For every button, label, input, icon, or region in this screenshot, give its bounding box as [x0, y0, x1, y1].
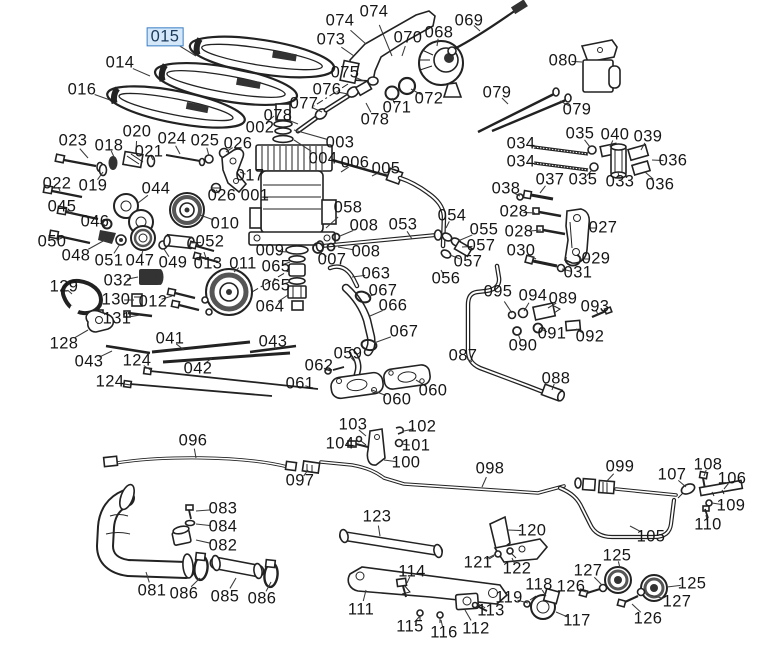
- part-label-068[interactable]: 068: [425, 24, 454, 41]
- part-label-004[interactable]: 004: [309, 150, 338, 167]
- part-label-008[interactable]: 008: [352, 243, 381, 260]
- labels-layer: 0150140160740740730700680690750760770780…: [0, 0, 779, 659]
- part-label-049[interactable]: 049: [159, 254, 188, 271]
- part-label-060[interactable]: 060: [419, 382, 448, 399]
- part-label-086[interactable]: 086: [248, 590, 277, 607]
- part-label-013[interactable]: 013: [194, 255, 223, 272]
- part-label-101[interactable]: 101: [402, 437, 431, 454]
- part-label-043[interactable]: 043: [75, 353, 104, 370]
- part-label-031[interactable]: 031: [564, 264, 593, 281]
- part-label-010[interactable]: 010: [211, 215, 240, 232]
- part-label-077[interactable]: 077: [290, 95, 319, 112]
- part-label-109[interactable]: 109: [717, 497, 746, 514]
- part-label-129[interactable]: 129: [50, 278, 79, 295]
- part-label-116[interactable]: 116: [430, 624, 458, 641]
- part-label-088[interactable]: 088: [542, 370, 571, 387]
- part-label-022[interactable]: 022: [43, 175, 72, 192]
- part-label-048[interactable]: 048: [62, 247, 91, 264]
- part-label-102[interactable]: 102: [408, 418, 437, 435]
- part-label-089[interactable]: 089: [549, 290, 578, 307]
- part-label-035[interactable]: 035: [566, 125, 595, 142]
- part-label-030[interactable]: 030: [507, 242, 536, 259]
- part-label-079[interactable]: 079: [563, 101, 592, 118]
- part-label-083[interactable]: 083: [209, 500, 238, 517]
- part-label-110[interactable]: 110: [694, 516, 722, 533]
- part-label-060[interactable]: 060: [383, 391, 412, 408]
- part-label-032[interactable]: 032: [104, 272, 133, 289]
- part-label-011[interactable]: 011: [229, 255, 257, 272]
- part-label-064[interactable]: 064: [256, 298, 285, 315]
- part-label-033[interactable]: 033: [606, 173, 635, 190]
- part-label-119[interactable]: 119: [495, 589, 523, 606]
- part-label-121[interactable]: 121: [464, 554, 493, 571]
- part-label-023[interactable]: 023: [59, 132, 88, 149]
- part-label-097[interactable]: 097: [286, 472, 315, 489]
- diagram-canvas: 0150140160740740730700680690750760770780…: [0, 0, 779, 659]
- part-label-071[interactable]: 071: [383, 99, 412, 116]
- part-label-099[interactable]: 099: [606, 458, 635, 475]
- part-label-045[interactable]: 045: [48, 198, 77, 215]
- part-label-120[interactable]: 120: [518, 522, 547, 539]
- part-label-066[interactable]: 066: [379, 297, 408, 314]
- part-label-069[interactable]: 069: [455, 12, 484, 29]
- part-label-065[interactable]: 065: [262, 277, 291, 294]
- part-label-103[interactable]: 103: [339, 416, 368, 433]
- part-label-084[interactable]: 084: [209, 518, 238, 535]
- part-label-006[interactable]: 006: [341, 154, 370, 171]
- part-label-058[interactable]: 058: [334, 199, 363, 216]
- part-label-017[interactable]: 017: [236, 167, 265, 184]
- part-label-067[interactable]: 067: [390, 323, 419, 340]
- part-label-062[interactable]: 062: [305, 357, 334, 374]
- part-label-094[interactable]: 094: [519, 287, 548, 304]
- part-label-114[interactable]: 114: [398, 563, 426, 580]
- part-label-008[interactable]: 008: [350, 217, 379, 234]
- part-label-026[interactable]: 026: [224, 135, 253, 152]
- part-label-115[interactable]: 115: [396, 618, 424, 635]
- part-label-091[interactable]: 091: [538, 325, 567, 342]
- part-label-065[interactable]: 065: [262, 258, 291, 275]
- part-label-047[interactable]: 047: [126, 252, 155, 269]
- part-label-090[interactable]: 090: [509, 337, 538, 354]
- part-label-111[interactable]: 111: [348, 601, 374, 618]
- part-label-123[interactable]: 123: [363, 508, 392, 525]
- part-label-028[interactable]: 028: [505, 223, 534, 240]
- part-label-034[interactable]: 034: [507, 153, 536, 170]
- part-label-061[interactable]: 061: [286, 375, 315, 392]
- part-label-059[interactable]: 059: [334, 345, 363, 362]
- part-label-072[interactable]: 072: [415, 90, 444, 107]
- part-label-057[interactable]: 057: [454, 253, 483, 270]
- part-label-046[interactable]: 046: [81, 213, 110, 230]
- part-label-124[interactable]: 124: [96, 373, 125, 390]
- part-label-005[interactable]: 005: [372, 160, 401, 177]
- part-label-070[interactable]: 070: [394, 29, 423, 46]
- part-label-034[interactable]: 034: [507, 135, 536, 152]
- part-label-124[interactable]: 124: [123, 352, 152, 369]
- part-label-126[interactable]: 126: [557, 578, 586, 595]
- part-label-131[interactable]: 131: [103, 310, 132, 327]
- part-label-054[interactable]: 054: [438, 207, 467, 224]
- part-label-052[interactable]: 052: [196, 233, 225, 250]
- part-label-044[interactable]: 044: [142, 180, 171, 197]
- part-label-040[interactable]: 040: [601, 126, 630, 143]
- part-label-051[interactable]: 051: [95, 252, 124, 269]
- part-label-127[interactable]: 127: [663, 593, 692, 610]
- part-label-106[interactable]: 106: [718, 470, 747, 487]
- part-label-026[interactable]: 026: [208, 187, 237, 204]
- part-label-021[interactable]: 021: [135, 143, 164, 160]
- part-label-041[interactable]: 041: [156, 330, 185, 347]
- part-label-096[interactable]: 096: [179, 432, 208, 449]
- part-label-092[interactable]: 092: [576, 328, 605, 345]
- part-label-107[interactable]: 107: [658, 466, 687, 483]
- part-label-093[interactable]: 093: [581, 298, 610, 315]
- part-label-130[interactable]: 130: [102, 291, 131, 308]
- part-label-036[interactable]: 036: [646, 176, 675, 193]
- part-label-073[interactable]: 073: [317, 31, 346, 48]
- part-label-035[interactable]: 035: [569, 171, 598, 188]
- part-label-042[interactable]: 042: [184, 360, 213, 377]
- part-label-038[interactable]: 038: [492, 180, 521, 197]
- part-label-014[interactable]: 014: [106, 54, 135, 71]
- part-label-015[interactable]: 015: [147, 27, 184, 46]
- part-label-001[interactable]: 001: [241, 187, 270, 204]
- part-label-087[interactable]: 087: [449, 347, 478, 364]
- part-label-100[interactable]: 100: [392, 454, 421, 471]
- part-label-036[interactable]: 036: [659, 152, 688, 169]
- part-label-082[interactable]: 082: [209, 537, 238, 554]
- part-label-128[interactable]: 128: [50, 335, 79, 352]
- part-label-104[interactable]: 104: [326, 435, 355, 452]
- part-label-020[interactable]: 020: [123, 123, 152, 140]
- part-label-012[interactable]: 012: [139, 293, 168, 310]
- part-label-016[interactable]: 016: [68, 81, 97, 98]
- part-label-074[interactable]: 074: [326, 12, 355, 29]
- part-label-053[interactable]: 053: [389, 216, 418, 233]
- part-label-126[interactable]: 126: [634, 610, 663, 627]
- part-label-002[interactable]: 002: [246, 119, 275, 136]
- part-label-056[interactable]: 056: [432, 270, 461, 287]
- part-label-074[interactable]: 074: [360, 3, 389, 20]
- part-label-039[interactable]: 039: [634, 128, 663, 145]
- part-label-028[interactable]: 028: [500, 203, 529, 220]
- part-label-080[interactable]: 080: [549, 52, 578, 69]
- part-label-095[interactable]: 095: [484, 283, 513, 300]
- part-label-018[interactable]: 018: [95, 137, 124, 154]
- part-label-117[interactable]: 117: [563, 612, 591, 629]
- part-label-085[interactable]: 085: [211, 588, 240, 605]
- part-label-081[interactable]: 081: [138, 582, 167, 599]
- part-label-079[interactable]: 079: [483, 84, 512, 101]
- part-label-112[interactable]: 112: [462, 620, 490, 637]
- part-label-027[interactable]: 027: [589, 219, 618, 236]
- part-label-025[interactable]: 025: [191, 132, 220, 149]
- part-label-019[interactable]: 019: [79, 177, 108, 194]
- part-label-125[interactable]: 125: [678, 575, 707, 592]
- part-label-105[interactable]: 105: [637, 528, 666, 545]
- part-label-098[interactable]: 098: [476, 460, 505, 477]
- part-label-118[interactable]: 118: [525, 576, 553, 593]
- part-label-037[interactable]: 037: [536, 171, 565, 188]
- part-label-125[interactable]: 125: [603, 547, 632, 564]
- part-label-007[interactable]: 007: [318, 251, 347, 268]
- part-label-086[interactable]: 086: [170, 585, 199, 602]
- part-label-063[interactable]: 063: [362, 265, 391, 282]
- part-label-043[interactable]: 043: [259, 333, 288, 350]
- part-label-075[interactable]: 075: [331, 64, 360, 81]
